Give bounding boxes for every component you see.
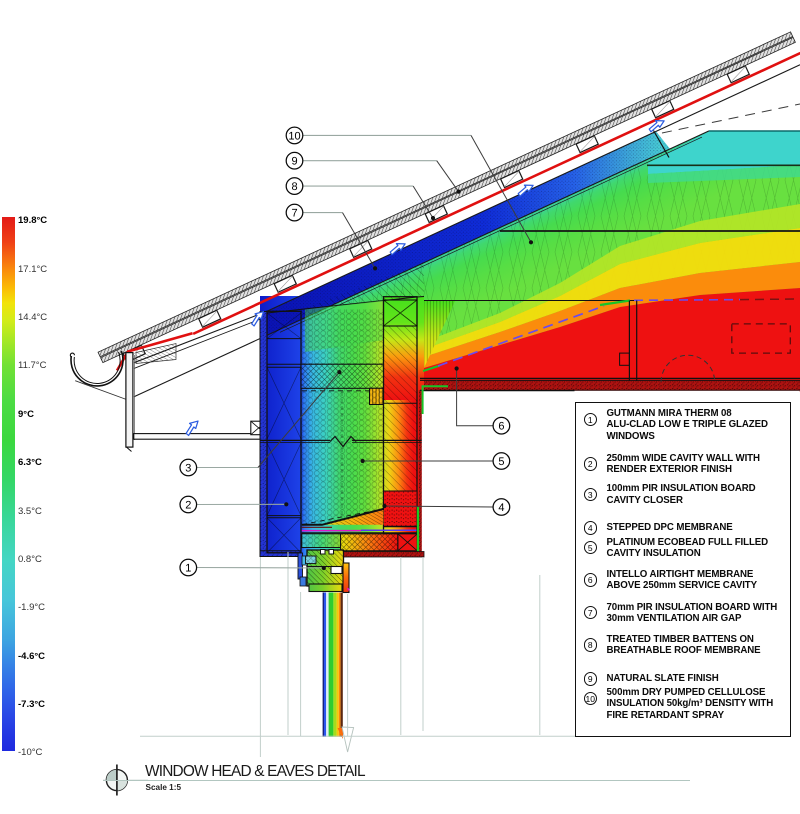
svg-text:5: 5 xyxy=(498,456,504,468)
svg-text:10: 10 xyxy=(288,130,300,142)
svg-text:1: 1 xyxy=(185,562,191,574)
svg-text:4: 4 xyxy=(498,502,504,514)
svg-text:8: 8 xyxy=(291,181,297,193)
svg-text:2: 2 xyxy=(185,499,191,511)
svg-text:3: 3 xyxy=(185,462,191,474)
svg-text:7: 7 xyxy=(291,208,297,220)
svg-text:6: 6 xyxy=(498,421,504,433)
svg-text:9: 9 xyxy=(291,156,297,168)
